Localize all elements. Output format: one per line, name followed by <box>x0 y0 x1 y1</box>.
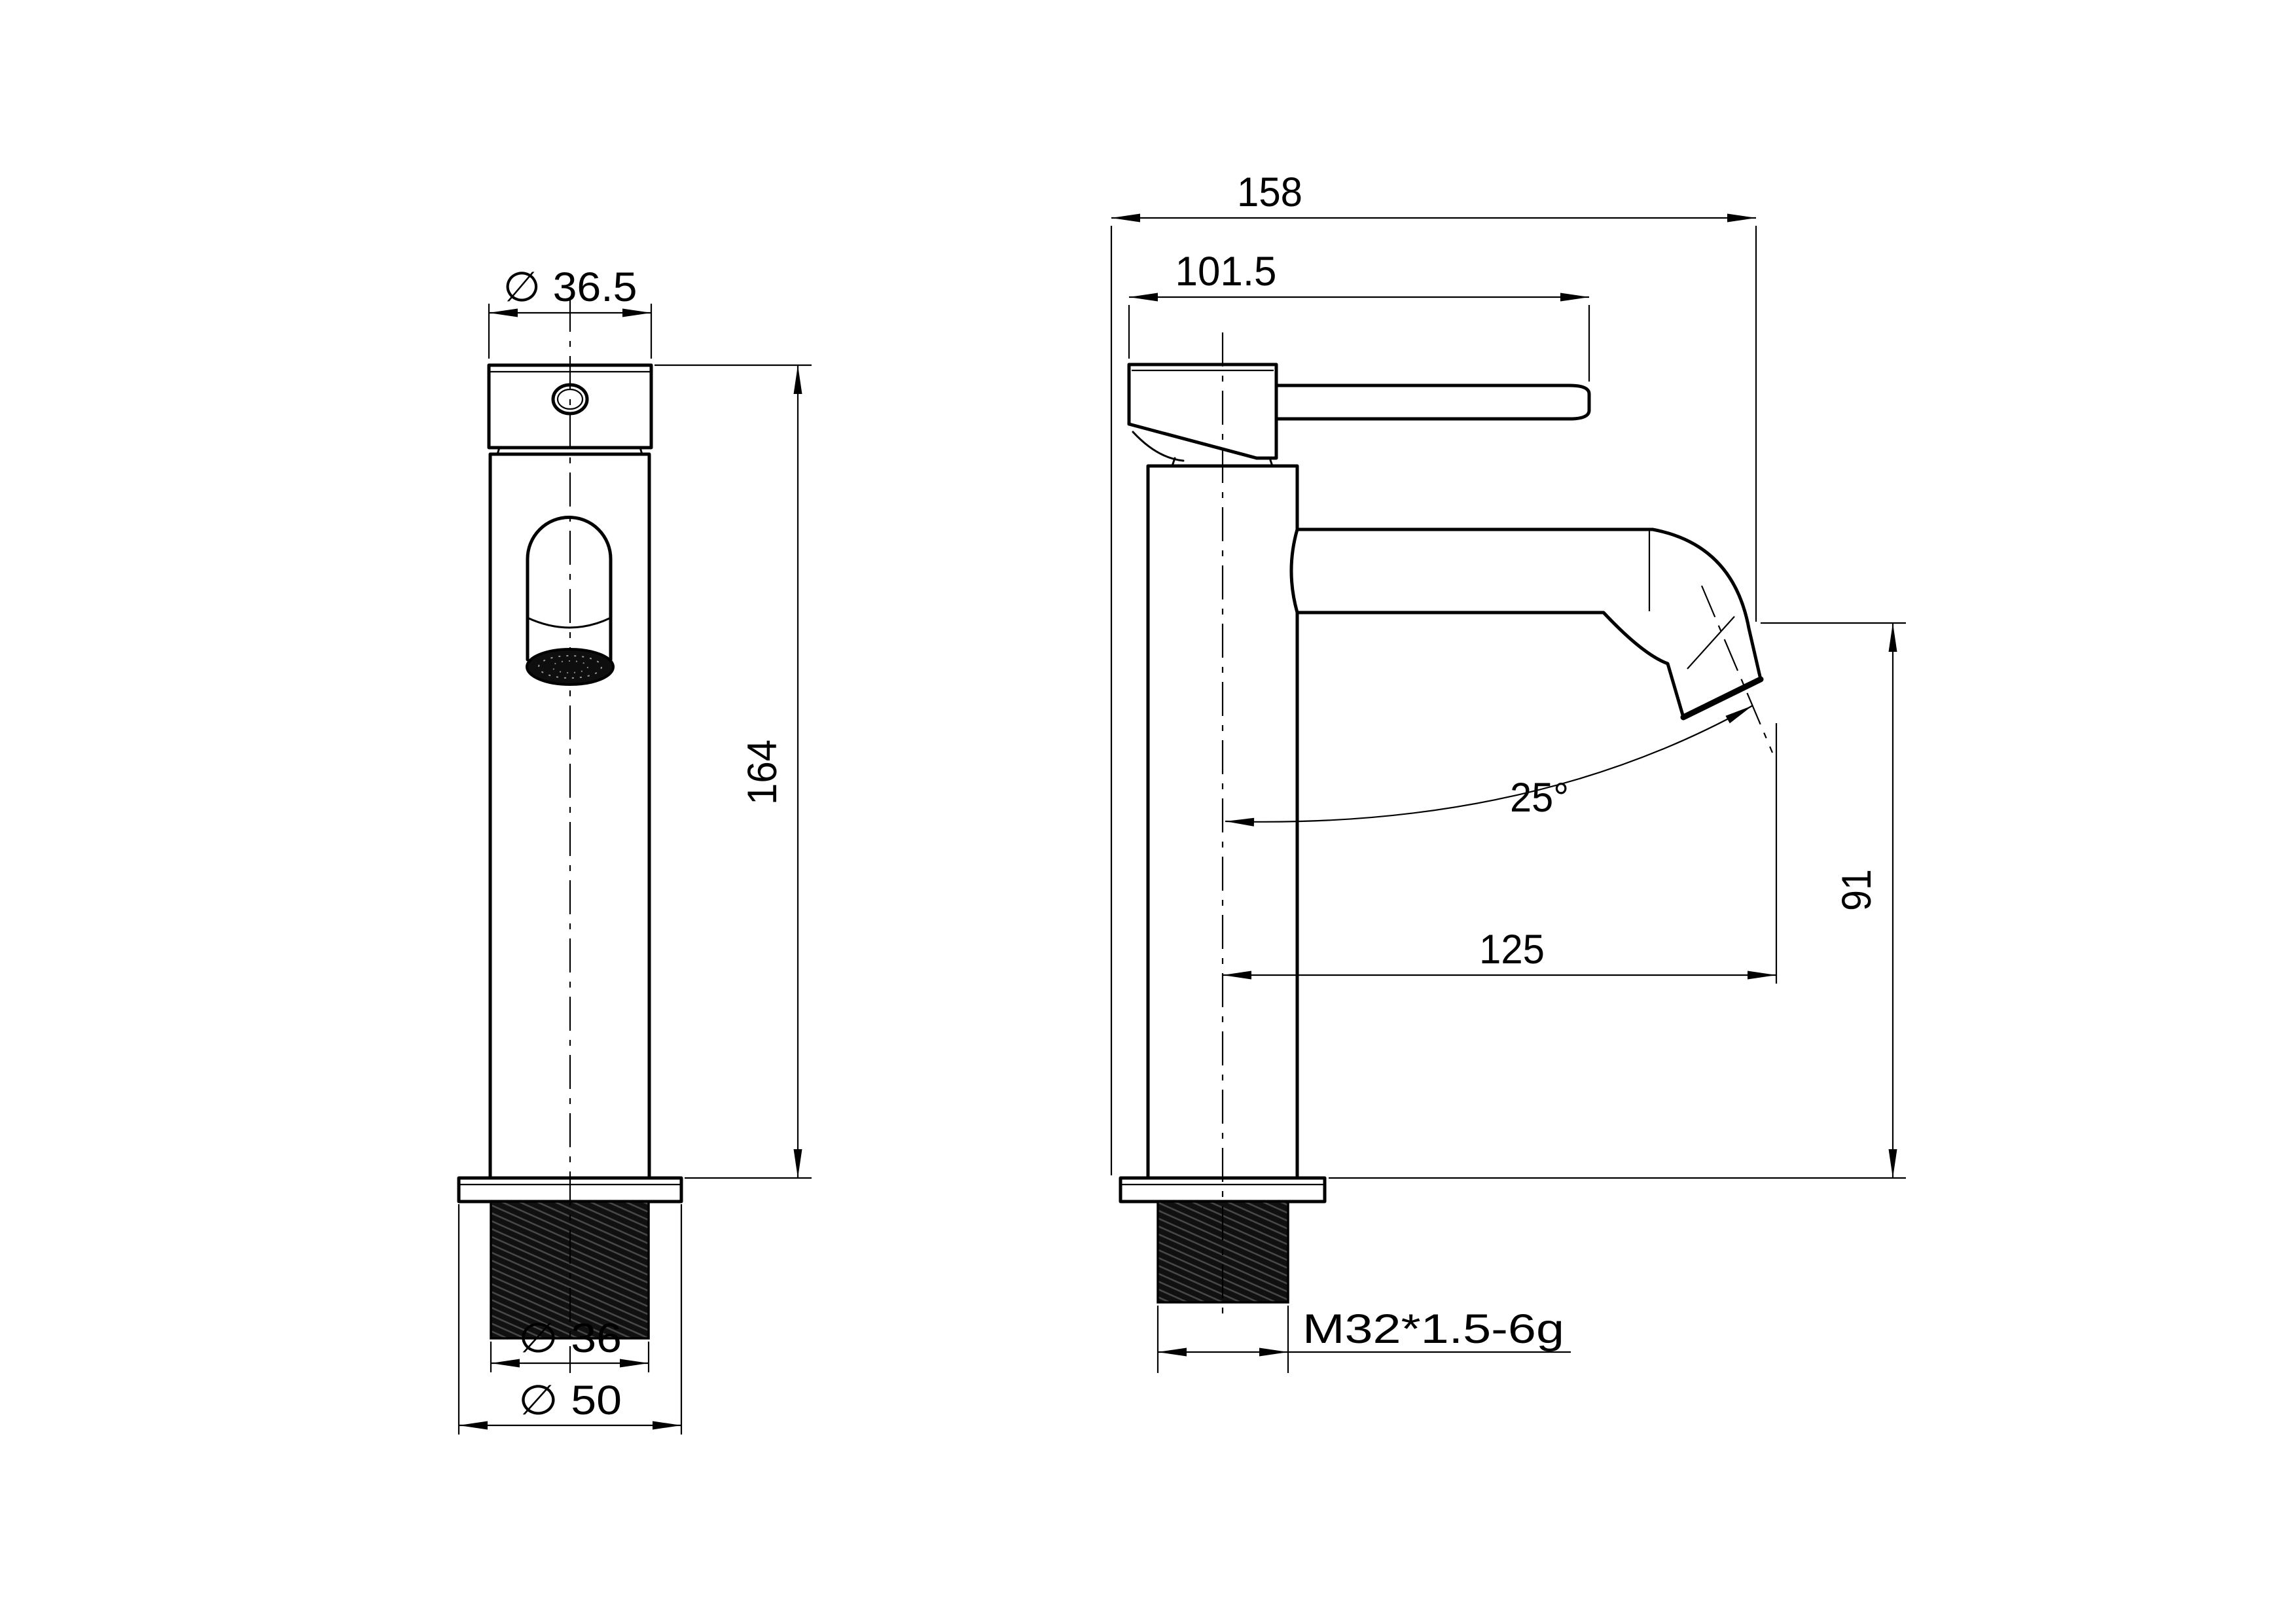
front-view: ∅ 36.5 164 ∅ 36 ∅ 50 <box>459 264 812 1435</box>
dim-label-spout-reach: 125 <box>1479 927 1545 972</box>
side-lever-handle <box>1276 385 1589 419</box>
angle-arc <box>1225 705 1753 822</box>
side-cap-tilt-cut <box>1129 424 1257 458</box>
faucet-dimension-drawing: ∅ 36.5 164 ∅ 36 ∅ 50 <box>0 0 2296 1623</box>
dim-label-cap-diameter: ∅ 36.5 <box>503 264 637 310</box>
dim-label-spout-angle: 25° <box>1510 775 1569 821</box>
dim-label-overall-height: 164 <box>740 740 785 805</box>
front-dim-overall-height: 164 <box>655 365 812 1178</box>
side-dim-shank-thread: M32*1.5-6g <box>1158 1306 1571 1373</box>
side-spout-outlet-axis <box>1702 586 1772 753</box>
dim-label-overall-depth: 158 <box>1237 169 1302 215</box>
dim-label-handle-reach: 101.5 <box>1175 249 1277 294</box>
dim-label-spout-height: 91 <box>1834 869 1880 911</box>
dim-label-shank-thread: M32*1.5-6g <box>1302 1306 1564 1352</box>
side-dim-spout-height: 91 <box>1329 623 1906 1178</box>
side-dim-handle-reach: 101.5 <box>1129 249 1589 382</box>
side-dim-overall-depth: 158 <box>1111 169 1756 1175</box>
dim-label-flange-diameter: ∅ 50 <box>518 1378 622 1423</box>
side-spout-root-fillet <box>1291 529 1297 613</box>
side-dim-spout-reach: 125 <box>1223 723 1776 984</box>
dim-label-shank-diameter: ∅ 36 <box>518 1315 622 1361</box>
side-spout-inner-edge <box>1297 613 1683 717</box>
front-aerator-face <box>527 649 613 685</box>
side-dim-spout-angle: 25° <box>1225 705 1753 822</box>
drawing-sheet: ∅ 36.5 164 ∅ 36 ∅ 50 <box>0 0 2296 1623</box>
side-spout-transition-line <box>1687 616 1734 669</box>
side-view: 158 101.5 25° 125 91 <box>1111 169 1906 1373</box>
side-spout-outer-edge <box>1297 529 1761 679</box>
